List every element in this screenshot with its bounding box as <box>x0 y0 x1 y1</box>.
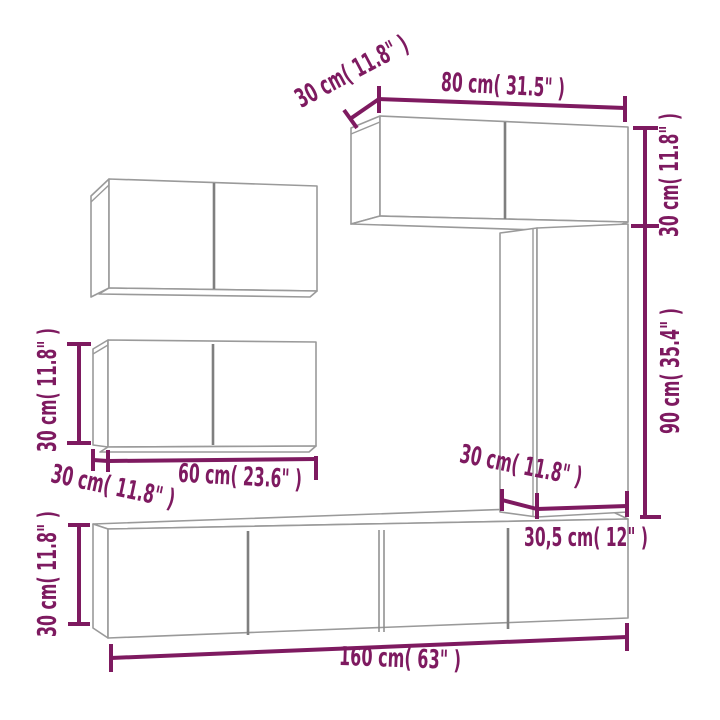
cabinet-mid-left-underside <box>100 446 316 452</box>
label-stand-height: 30 cm( 11.8" ) <box>33 511 63 637</box>
dim-line-side-depth <box>93 460 108 461</box>
label-side-width: 60 cm( 23.6" ) <box>177 459 302 495</box>
cabinet-mid-left-side-panel <box>93 340 108 447</box>
cabinet-top-left-side-panel <box>91 179 109 297</box>
label-top-depth: 30 cm( 11.8" ) <box>290 30 414 115</box>
label-upper-right-height: 30 cm( 11.8" ) <box>655 113 685 237</box>
label-side-depth: 30 cm( 11.8" ) <box>48 459 177 515</box>
cabinet-top-center <box>351 116 628 232</box>
dimension-right-heights: 30 cm( 11.8" ) 90 cm( 35.4" ) <box>631 113 686 517</box>
diagram-canvas: 30 cm( 11.8" ) 80 cm( 31.5" ) 30 cm( 11.… <box>0 0 720 720</box>
cabinet-top-left <box>91 179 317 297</box>
dimension-side-cabinet-width: 30 cm( 11.8" ) 60 cm( 23.6" ) <box>48 449 316 515</box>
product-dimension-diagram: 30 cm( 11.8" ) 80 cm( 31.5" ) 30 cm( 11.… <box>0 0 720 720</box>
label-stand-width: 160 cm( 63" ) <box>339 642 462 676</box>
label-right-height: 90 cm( 35.4" ) <box>656 308 686 434</box>
dimension-side-cabinet-height: 30 cm( 11.8" ) <box>33 328 91 452</box>
dimension-top-cabinet: 30 cm( 11.8" ) 80 cm( 31.5" ) <box>290 30 625 128</box>
dimension-stand-height: 30 cm( 11.8" ) <box>33 511 90 637</box>
label-tall-width: 30,5 cm( 12" ) <box>524 523 648 553</box>
cabinet-mid-left <box>93 340 316 452</box>
dim-line-top-depth <box>350 99 379 119</box>
label-side-height: 30 cm( 11.8" ) <box>33 328 63 452</box>
tv-stand-side-panel <box>93 524 108 638</box>
label-top-width: 80 cm( 31.5" ) <box>440 68 565 104</box>
